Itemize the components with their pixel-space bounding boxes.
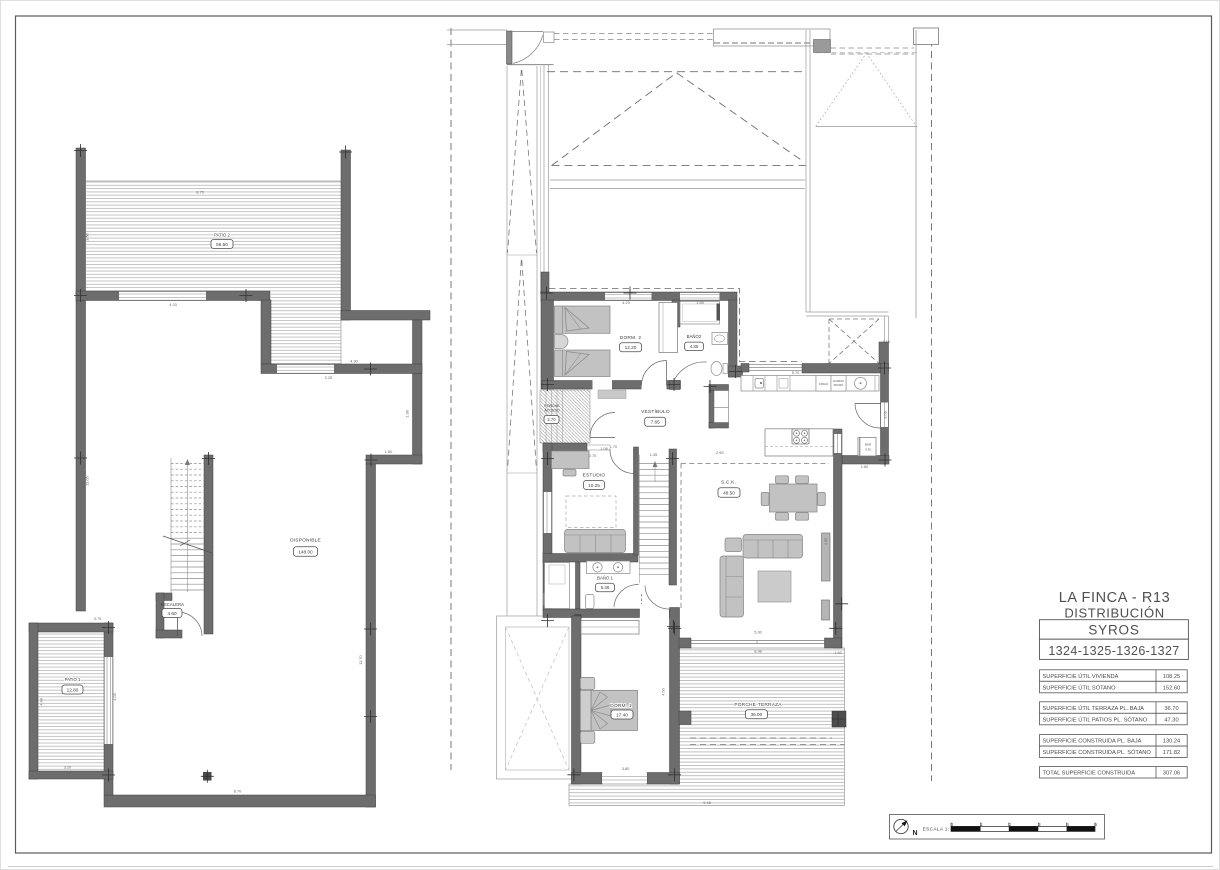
svg-text:3.50: 3.50 bbox=[85, 232, 90, 240]
svg-text:3.50: 3.50 bbox=[263, 329, 268, 337]
svg-text:MICRO: MICRO bbox=[834, 383, 844, 387]
svg-text:1.60: 1.60 bbox=[861, 464, 869, 469]
svg-text:4.48: 4.48 bbox=[39, 698, 44, 706]
svg-text:12.80: 12.80 bbox=[67, 687, 79, 692]
svg-text:N: N bbox=[913, 830, 918, 837]
svg-text:ESCALA 1:: ESCALA 1: bbox=[923, 827, 950, 833]
svg-text:1.35: 1.35 bbox=[650, 452, 658, 457]
svg-text:3.08: 3.08 bbox=[883, 411, 888, 419]
svg-text:DORM. 2: DORM. 2 bbox=[620, 335, 642, 341]
svg-text:4.23: 4.23 bbox=[622, 300, 630, 305]
svg-text:7.65: 7.65 bbox=[651, 420, 661, 425]
svg-text:PORCHE-TERRAZA: PORCHE-TERRAZA bbox=[734, 702, 782, 708]
svg-text:2.70: 2.70 bbox=[547, 417, 556, 422]
svg-text:4.60: 4.60 bbox=[167, 611, 177, 616]
svg-text:1324-1325-1326-1327: 1324-1325-1326-1327 bbox=[1048, 644, 1179, 658]
svg-text:SUPERFICIE CONSTRUIDA PL. SÓTA: SUPERFICIE CONSTRUIDA PL. SÓTANO bbox=[1043, 749, 1152, 756]
svg-text:2.75: 2.75 bbox=[604, 556, 612, 561]
svg-text:5.70: 5.70 bbox=[792, 370, 800, 375]
svg-text:4.33: 4.33 bbox=[169, 302, 177, 307]
svg-text:FRIGO: FRIGO bbox=[819, 382, 829, 386]
svg-text:12.20: 12.20 bbox=[625, 345, 637, 350]
svg-text:TOTAL SUPERFICIE CONSTRUIDA: TOTAL SUPERFICIE CONSTRUIDA bbox=[1043, 771, 1136, 777]
svg-text:1.62: 1.62 bbox=[834, 650, 842, 655]
svg-text:ESTUDIO: ESTUDIO bbox=[583, 473, 606, 479]
svg-text:4.85: 4.85 bbox=[690, 344, 699, 349]
svg-text:4.90: 4.90 bbox=[350, 359, 358, 364]
svg-text:56.50: 56.50 bbox=[216, 242, 228, 247]
svg-text:4.50: 4.50 bbox=[661, 687, 666, 695]
svg-text:9.48: 9.48 bbox=[703, 800, 711, 805]
svg-text:2.70: 2.70 bbox=[589, 453, 597, 458]
svg-text:307.06: 307.06 bbox=[1163, 771, 1180, 777]
svg-text:48.50: 48.50 bbox=[723, 491, 735, 496]
svg-text:1.06: 1.06 bbox=[600, 446, 608, 451]
svg-text:3.80: 3.80 bbox=[622, 766, 630, 771]
svg-text:108.25: 108.25 bbox=[1163, 674, 1180, 680]
svg-text:8.98: 8.98 bbox=[754, 649, 762, 654]
svg-text:47.30: 47.30 bbox=[1164, 717, 1178, 723]
svg-text:1.60: 1.60 bbox=[385, 449, 393, 454]
svg-text:SUPERFICIE ÚTIL PATIOS PL. SÓT: SUPERFICIE ÚTIL PATIOS PL. SÓTANO bbox=[1043, 716, 1148, 723]
svg-text:SYROS: SYROS bbox=[1088, 623, 1139, 638]
svg-text:3.20: 3.20 bbox=[64, 765, 72, 770]
svg-text:1.15: 1.15 bbox=[882, 339, 890, 344]
svg-text:BAR: BAR bbox=[865, 443, 872, 447]
svg-text:VESTÍBULO: VESTÍBULO bbox=[641, 408, 670, 415]
svg-text:152.60: 152.60 bbox=[1163, 685, 1180, 691]
svg-text:10.25: 10.25 bbox=[588, 483, 600, 488]
svg-text:ACCESO: ACCESO bbox=[544, 409, 559, 413]
svg-text:36.00: 36.00 bbox=[751, 712, 763, 717]
svg-text:5.45: 5.45 bbox=[601, 585, 610, 590]
svg-text:S.C.K.: S.C.K. bbox=[721, 480, 736, 486]
svg-text:SUPERFICIE ÚTIL TERRAZA PL. BA: SUPERFICIE ÚTIL TERRAZA PL. BAJA bbox=[1043, 705, 1145, 712]
svg-text:36.70: 36.70 bbox=[1164, 706, 1178, 712]
svg-text:4.03: 4.03 bbox=[112, 693, 117, 701]
svg-text:11.05: 11.05 bbox=[85, 476, 90, 485]
svg-text:148.00: 148.00 bbox=[298, 550, 313, 555]
svg-text:2.25: 2.25 bbox=[325, 375, 333, 380]
svg-text:BAÑO2: BAÑO2 bbox=[687, 334, 702, 339]
svg-text:3.30: 3.30 bbox=[865, 448, 871, 452]
svg-text:BAÑO 1: BAÑO 1 bbox=[597, 576, 613, 581]
svg-text:SUPERFICIE ÚTIL VIVIENDA: SUPERFICIE ÚTIL VIVIENDA bbox=[1043, 673, 1119, 680]
svg-text:PATIO 1: PATIO 1 bbox=[65, 677, 81, 682]
svg-text:SUPERFICIE ÚTIL SÓTANO: SUPERFICIE ÚTIL SÓTANO bbox=[1043, 684, 1117, 691]
svg-text:1.98: 1.98 bbox=[405, 410, 410, 418]
svg-text:SUPERFICIE CONSTRUIDA PL. BAJA: SUPERFICIE CONSTRUIDA PL. BAJA bbox=[1043, 739, 1142, 745]
svg-text:1.70: 1.70 bbox=[610, 444, 618, 449]
svg-text:8.75: 8.75 bbox=[196, 190, 204, 195]
svg-text:8.70: 8.70 bbox=[234, 789, 242, 794]
svg-text:17.40: 17.40 bbox=[616, 712, 628, 717]
svg-text:DISTRIBUCIÓN: DISTRIBUCIÓN bbox=[1064, 606, 1164, 621]
svg-text:5.30: 5.30 bbox=[754, 630, 762, 635]
svg-text:1.65: 1.65 bbox=[696, 300, 704, 305]
svg-text:4.05: 4.05 bbox=[823, 538, 828, 546]
svg-text:2.95: 2.95 bbox=[716, 450, 724, 455]
svg-text:ESCALERA: ESCALERA bbox=[161, 602, 184, 607]
svg-text:3.75: 3.75 bbox=[94, 616, 102, 621]
svg-text:130.24: 130.24 bbox=[1163, 739, 1180, 745]
svg-text:PORCHE: PORCHE bbox=[544, 404, 560, 408]
svg-text:11.70: 11.70 bbox=[358, 654, 363, 664]
svg-text:171.82: 171.82 bbox=[1163, 750, 1180, 756]
svg-text:LA FINCA - R13: LA FINCA - R13 bbox=[1059, 590, 1171, 606]
svg-text:DORM. 1: DORM. 1 bbox=[610, 703, 632, 709]
svg-text:PATIO 2: PATIO 2 bbox=[214, 233, 230, 238]
svg-text:DISPONIBLE: DISPONIBLE bbox=[290, 538, 321, 544]
